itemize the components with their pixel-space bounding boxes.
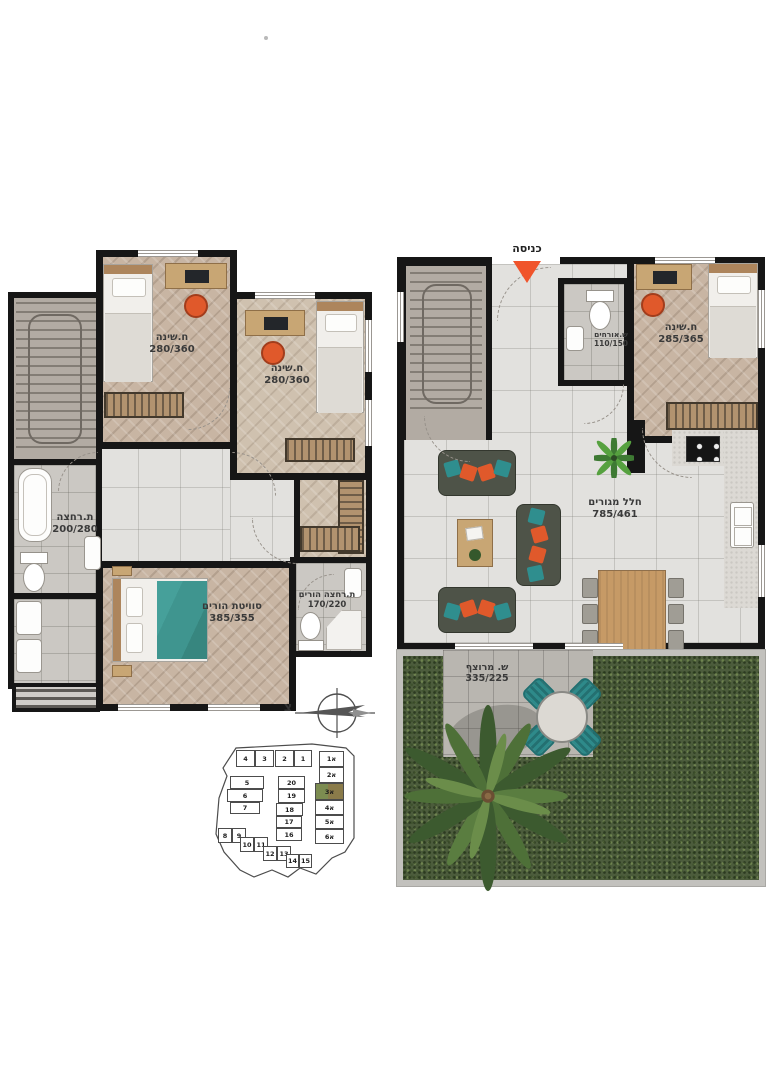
room-name: ש. מרוצף [447, 662, 527, 673]
site-plan-unit: 20 [278, 776, 305, 789]
kitchen-sink [730, 502, 754, 548]
room-name: סוויטת הורים [192, 601, 272, 613]
stair-rail [28, 314, 82, 444]
room-label-bedroom1: ח.שינה 280/360 [132, 332, 212, 356]
room-dims: 280/360 [247, 375, 327, 387]
laptop-icon [264, 317, 288, 330]
window [255, 292, 315, 299]
dining-chair [668, 630, 684, 650]
window [365, 400, 372, 446]
room-dims: 285/365 [641, 334, 721, 346]
patio-door [565, 643, 623, 650]
room-label-living: חלל מגורים 785/461 [574, 497, 656, 521]
site-plan-unit: 16 [276, 828, 302, 841]
site-plan-unit: 12 [263, 846, 277, 861]
room-dims: 785/461 [574, 509, 656, 521]
pillow [459, 463, 478, 482]
wardrobe [300, 526, 360, 552]
pillow [493, 602, 512, 621]
entrance-arrow-icon [513, 261, 541, 283]
sink [84, 536, 101, 570]
floor-plan-sheet: ח.שינה 280/360 ח.שינה 280/360 ת.רחצה 200… [0, 0, 771, 1080]
dining-chair [582, 578, 598, 598]
pillow [459, 599, 478, 618]
room-name: ת.רחצה הורים [287, 590, 367, 600]
room-name: ת.רחצה [35, 512, 115, 524]
site-plan-unit: 15 [299, 854, 312, 868]
washer [16, 601, 42, 635]
toilet-tank [298, 640, 324, 651]
pillow [528, 545, 547, 564]
laptop-icon [653, 271, 677, 284]
window [455, 643, 533, 650]
site-plan-unit: 6 [227, 789, 263, 802]
pillow [493, 459, 512, 478]
dining-table [598, 570, 666, 652]
site-plan-unit: 8 [218, 828, 232, 843]
sofa [438, 587, 516, 633]
window [118, 704, 170, 711]
headboard [113, 579, 121, 661]
stair-rail [422, 284, 472, 404]
room-dims: 200/280 [35, 524, 115, 536]
desk [165, 263, 227, 289]
room-name: ח.שינה [641, 322, 721, 334]
site-plan-unit: 10 [240, 837, 254, 852]
office-chair [641, 293, 665, 317]
upper-hallway-floor [96, 445, 237, 567]
site-plan-unit: 18 [276, 803, 303, 816]
room-dims: 280/360 [132, 344, 212, 356]
room-dims: 335/225 [447, 673, 527, 684]
site-plan-unit: 6א [315, 829, 344, 844]
site-plan-units: 43211א2א56720191817163א4א5א6א89101112131… [212, 740, 364, 890]
desk [636, 264, 692, 290]
headboard [317, 302, 363, 311]
toilet [298, 612, 324, 650]
pillow [112, 278, 146, 297]
site-plan: 43211א2א56720191817163א4א5א6א89101112131… [212, 740, 364, 890]
site-plan-unit: 7 [230, 802, 260, 814]
plant-icon [594, 438, 634, 478]
room-dims: 385/355 [192, 613, 272, 625]
wardrobe [285, 438, 355, 462]
compass-icon [293, 686, 377, 740]
pillow [325, 314, 357, 332]
wardrobe [666, 402, 758, 430]
dining-chair [668, 604, 684, 624]
stray-dot [264, 36, 268, 40]
compass-north-label: צ [281, 700, 295, 716]
single-bed [316, 301, 364, 413]
book [465, 526, 484, 541]
pillow [527, 507, 545, 525]
window [758, 545, 765, 597]
window [655, 257, 715, 264]
window [397, 292, 404, 342]
site-plan-unit: 2 [275, 750, 294, 767]
site-plan-unit: 3 [255, 750, 274, 767]
toilet [20, 552, 48, 594]
toilet [586, 290, 614, 330]
room-label-ground-bedroom: ח.שינה 285/365 [641, 322, 721, 346]
toilet-bowl [23, 563, 45, 592]
headboard [104, 265, 152, 274]
window [208, 704, 260, 711]
site-plan-unit: 14 [286, 854, 299, 868]
room-label-parents-bathroom: ת.רחצה הורים 170/220 [287, 590, 367, 610]
entrance-label: כניסה [497, 242, 557, 255]
room-label-guest-wc: ש.אורחים 110/150 [576, 330, 646, 348]
wardrobe [104, 392, 184, 418]
office-chair [184, 294, 208, 318]
room-label-bedroom2: ח.שינה 280/360 [247, 363, 327, 387]
window [365, 320, 372, 372]
table-plant [469, 549, 481, 561]
sofa [516, 504, 561, 586]
room-name: ש.אורחים [576, 330, 646, 339]
toilet-bowl [300, 612, 321, 640]
site-plan-unit-highlighted: 3א [315, 783, 344, 800]
site-plan-unit: 4 [236, 750, 255, 767]
pillow [126, 623, 143, 653]
coffee-table [457, 519, 493, 567]
room-label-bathroom: ת.רחצה 200/280 [35, 512, 115, 536]
laptop-icon [185, 270, 209, 283]
toilet-bowl [589, 301, 611, 330]
site-plan-unit: 1 [294, 750, 312, 767]
office-chair [261, 341, 285, 365]
site-plan-unit: 2א [319, 767, 344, 783]
dining-chair [668, 578, 684, 598]
palm-tree [390, 703, 586, 893]
room-dims: 170/220 [287, 600, 367, 610]
pillow [527, 565, 545, 583]
dryer [16, 639, 42, 673]
site-plan-unit: 4א [315, 800, 344, 815]
nightstand [112, 566, 132, 576]
window [138, 250, 198, 257]
upper-balcony [12, 683, 100, 712]
site-plan-unit: 5 [230, 776, 264, 789]
room-dims: 110/150 [576, 339, 646, 348]
pillow [126, 587, 143, 617]
site-plan-unit: 17 [276, 816, 302, 828]
headboard [709, 264, 757, 273]
room-name: חלל מגורים [574, 497, 656, 509]
room-label-paved-yard: ש. מרוצף 335/225 [447, 662, 527, 685]
site-plan-unit: 19 [278, 789, 305, 803]
sink-basin [734, 527, 752, 546]
single-bed [103, 264, 153, 382]
pillow [530, 525, 549, 544]
window [758, 290, 765, 348]
nightstand [112, 665, 132, 677]
desk [245, 310, 305, 336]
pillow [717, 276, 751, 294]
dining-chair [582, 604, 598, 624]
site-plan-unit: 5א [315, 815, 344, 829]
site-plan-unit: 1א [319, 751, 344, 767]
room-label-parents-suite: סוויטת הורים 385/355 [192, 601, 272, 625]
sink-basin [734, 507, 752, 526]
room-name: ח.שינה [247, 363, 327, 375]
room-name: ח.שינה [132, 332, 212, 344]
